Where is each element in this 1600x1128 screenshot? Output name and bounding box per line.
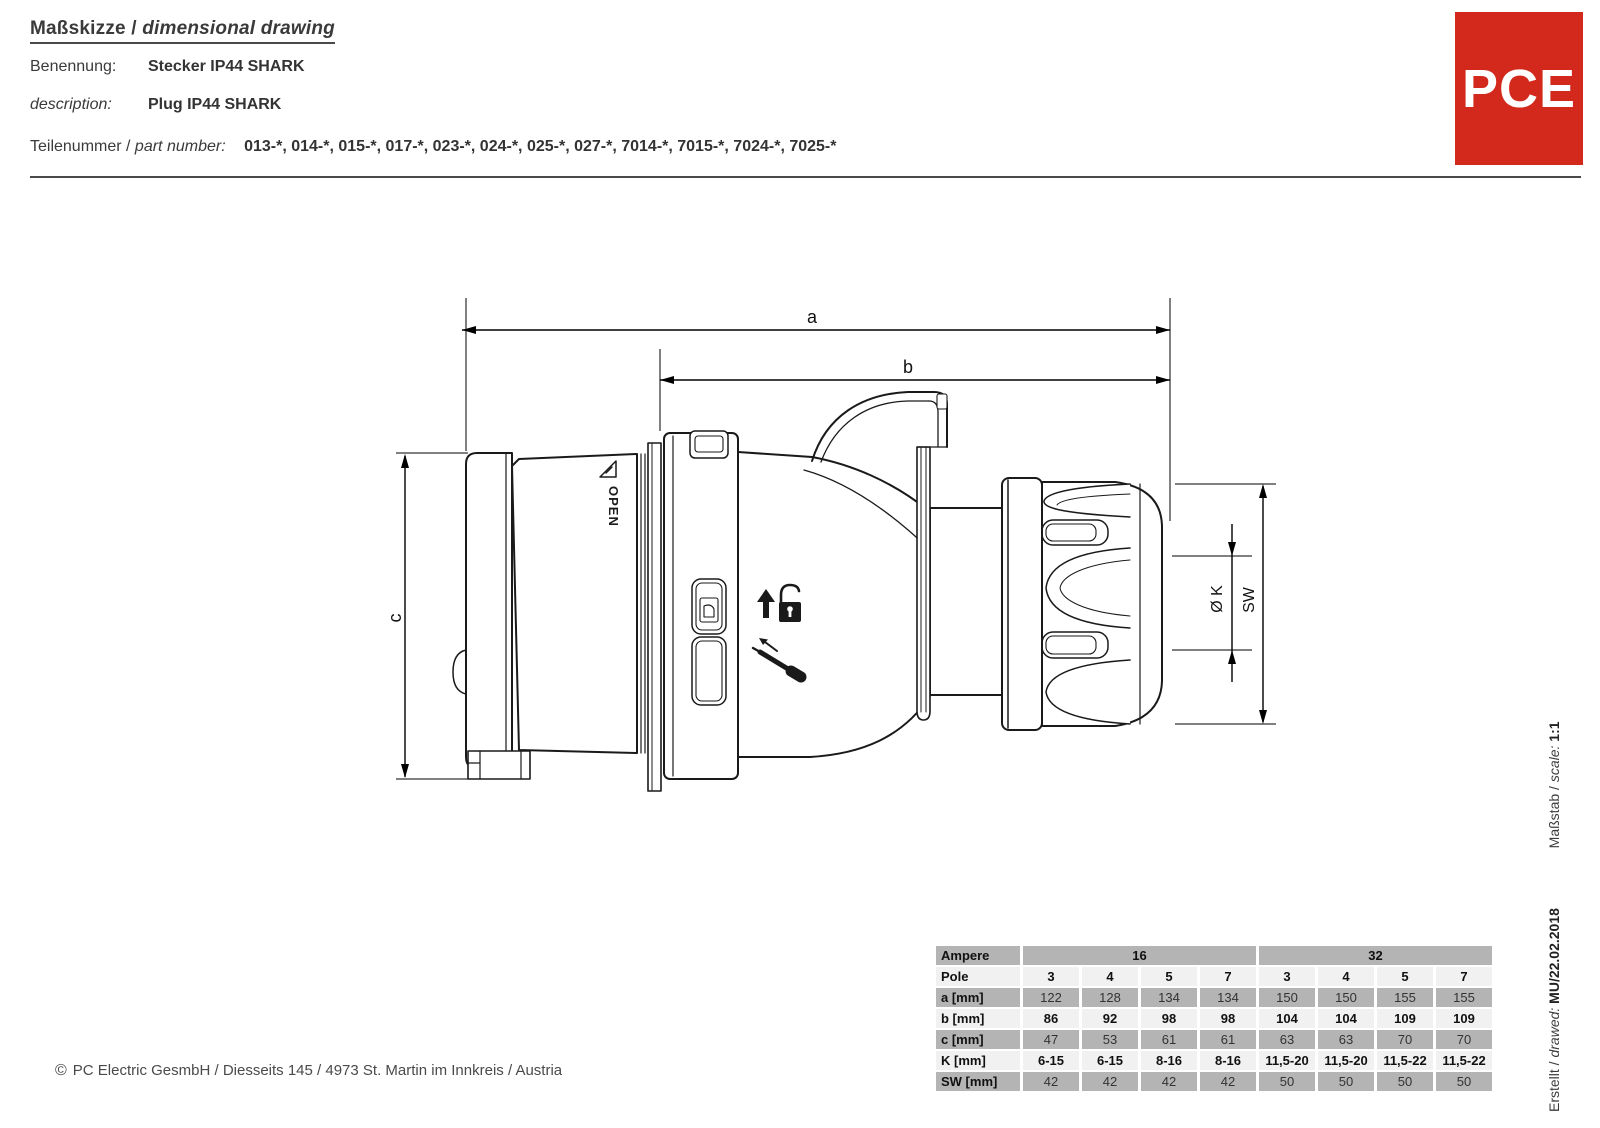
part-numbers-value: 013-*, 014-*, 015-*, 017-*, 023-*, 024-*…	[244, 138, 836, 155]
dim-k-label: Ø K	[1209, 585, 1226, 613]
plug-technical-drawing: a b c SW Ø K	[390, 275, 1300, 845]
table-row-b: b [mm] 86 92 98 98 104 104 109 109	[936, 1009, 1492, 1028]
unlock-icon	[779, 585, 801, 622]
table-cell: 92	[1082, 1009, 1138, 1028]
part-number-label: part number:	[135, 138, 226, 155]
table-cell: 8-16	[1200, 1051, 1256, 1070]
erstellt-label: Erstellt /	[1546, 1058, 1562, 1112]
table-cell: 11,5-20	[1318, 1051, 1374, 1070]
table-cell: 50	[1318, 1072, 1374, 1091]
row-label-c: c [mm]	[936, 1030, 1020, 1049]
table-cell: 70	[1436, 1030, 1492, 1049]
dim-b: b	[660, 349, 1170, 431]
table-cell: 150	[1259, 988, 1315, 1007]
table-cell: 50	[1259, 1072, 1315, 1091]
table-cell: 3	[1259, 967, 1315, 986]
side-info: Erstellt / drawed: MU/22.02.2018 Maßstab…	[1546, 721, 1562, 1112]
scale-value: 1:1	[1546, 721, 1562, 741]
table-cell: 150	[1318, 988, 1374, 1007]
dimensions-table: Ampere 16 32 Pole 3 4 5 7 3 4 5 7 a [mm]…	[933, 944, 1495, 1093]
table-cell: 63	[1259, 1030, 1315, 1049]
drawed-label: drawed:	[1546, 1008, 1562, 1058]
latch-window-2	[692, 637, 726, 705]
table-cell: 42	[1082, 1072, 1138, 1091]
ampere-16-header: 16	[1023, 946, 1256, 965]
svg-text:OPEN: OPEN	[606, 486, 621, 527]
massstab-label: Maßstab /	[1546, 782, 1562, 848]
unlock-instruction	[753, 585, 801, 677]
row-label-b: b [mm]	[936, 1009, 1020, 1028]
table-row-ampere: Ampere 16 32	[936, 946, 1492, 965]
plug-body: OPEN	[453, 392, 1162, 791]
row-label-pole: Pole	[936, 967, 1020, 986]
benennung-value: Stecker IP44 SHARK	[148, 58, 305, 75]
table-cell: 8-16	[1141, 1051, 1197, 1070]
screwdriver-icon	[753, 638, 801, 677]
latch-window	[692, 579, 726, 634]
dim-a-label: a	[807, 307, 818, 327]
table-cell: 42	[1141, 1072, 1197, 1091]
drawed-value: MU/22.02.2018	[1546, 908, 1562, 1004]
table-cell: 70	[1377, 1030, 1433, 1049]
gland-nut	[1002, 478, 1162, 730]
arrow-up-icon	[757, 589, 775, 618]
table-cell: 11,5-22	[1436, 1051, 1492, 1070]
row-label-ampere: Ampere	[936, 946, 1020, 965]
header-divider	[30, 176, 1581, 178]
table-cell: 122	[1023, 988, 1079, 1007]
table-cell: 50	[1436, 1072, 1492, 1091]
locking-ring	[648, 431, 738, 791]
ampere-32-header: 32	[1259, 946, 1492, 965]
page-title-en: dimensional drawing	[142, 18, 335, 39]
table-cell: 6-15	[1082, 1051, 1138, 1070]
row-label-sw: SW [mm]	[936, 1072, 1020, 1091]
table-row-k: K [mm] 6-15 6-15 8-16 8-16 11,5-20 11,5-…	[936, 1051, 1492, 1070]
scale-label: scale:	[1546, 746, 1562, 783]
footer-text: PC Electric GesmbH / Diesseits 145 / 497…	[73, 1062, 562, 1079]
table-row-sw: SW [mm] 42 42 42 42 50 50 50 50	[936, 1072, 1492, 1091]
table-cell: 50	[1377, 1072, 1433, 1091]
page-title: Maßskizze / dimensional drawing	[30, 18, 335, 44]
table-cell: 7	[1436, 967, 1492, 986]
table-row-pole: Pole 3 4 5 7 3 4 5 7	[936, 967, 1492, 986]
table-cell: 42	[1200, 1072, 1256, 1091]
dim-sw-label: SW	[1241, 586, 1258, 613]
table-cell: 86	[1023, 1009, 1079, 1028]
table-cell: 155	[1436, 988, 1492, 1007]
table-cell: 11,5-22	[1377, 1051, 1433, 1070]
table-row-a: a [mm] 122 128 134 134 150 150 155 155	[936, 988, 1492, 1007]
table-cell: 104	[1259, 1009, 1315, 1028]
footer-copyright: ©PC Electric GesmbH / Diesseits 145 / 49…	[55, 1062, 562, 1080]
table-cell: 42	[1023, 1072, 1079, 1091]
table-cell: 61	[1200, 1030, 1256, 1049]
table-cell: 5	[1377, 967, 1433, 986]
table-cell: 104	[1318, 1009, 1374, 1028]
page-title-de: Maßskizze	[30, 18, 126, 39]
dim-k: Ø K	[1172, 524, 1252, 682]
carry-handle	[812, 392, 947, 720]
table-cell: 63	[1318, 1030, 1374, 1049]
copyright-icon: ©	[55, 1062, 67, 1079]
row-label-k: K [mm]	[936, 1051, 1020, 1070]
part-number-row: Teilenummer / part number: 013-*, 014-*,…	[30, 138, 836, 156]
table-cell: 155	[1377, 988, 1433, 1007]
table-cell: 6-15	[1023, 1051, 1079, 1070]
table-cell: 61	[1141, 1030, 1197, 1049]
table-cell: 109	[1436, 1009, 1492, 1028]
table-cell: 98	[1141, 1009, 1197, 1028]
table-cell: 134	[1200, 988, 1256, 1007]
pce-logo: PCE	[1455, 12, 1583, 165]
table-cell: 134	[1141, 988, 1197, 1007]
teilenummer-label: Teilenummer /	[30, 138, 135, 155]
dim-c-label: c	[390, 614, 405, 623]
table-cell: 11,5-20	[1259, 1051, 1315, 1070]
table-cell: 4	[1082, 967, 1138, 986]
table-row-c: c [mm] 47 53 61 61 63 63 70 70	[936, 1030, 1492, 1049]
dim-b-label: b	[903, 357, 913, 377]
table-cell: 4	[1318, 967, 1374, 986]
description-value: Plug IP44 SHARK	[148, 96, 281, 113]
row-label-a: a [mm]	[936, 988, 1020, 1007]
table-cell: 109	[1377, 1009, 1433, 1028]
table-cell: 7	[1200, 967, 1256, 986]
table-cell: 47	[1023, 1030, 1079, 1049]
pce-logo-text: PCE	[1462, 58, 1576, 120]
description-label: description:	[30, 96, 148, 114]
table-cell: 98	[1200, 1009, 1256, 1028]
dim-c: c	[390, 453, 468, 779]
benennung-row: Benennung:Stecker IP44 SHARK	[30, 58, 305, 76]
table-cell: 128	[1082, 988, 1138, 1007]
table-cell: 3	[1023, 967, 1079, 986]
benennung-label: Benennung:	[30, 58, 148, 76]
table-cell: 5	[1141, 967, 1197, 986]
description-row: description:Plug IP44 SHARK	[30, 96, 281, 114]
table-cell: 53	[1082, 1030, 1138, 1049]
